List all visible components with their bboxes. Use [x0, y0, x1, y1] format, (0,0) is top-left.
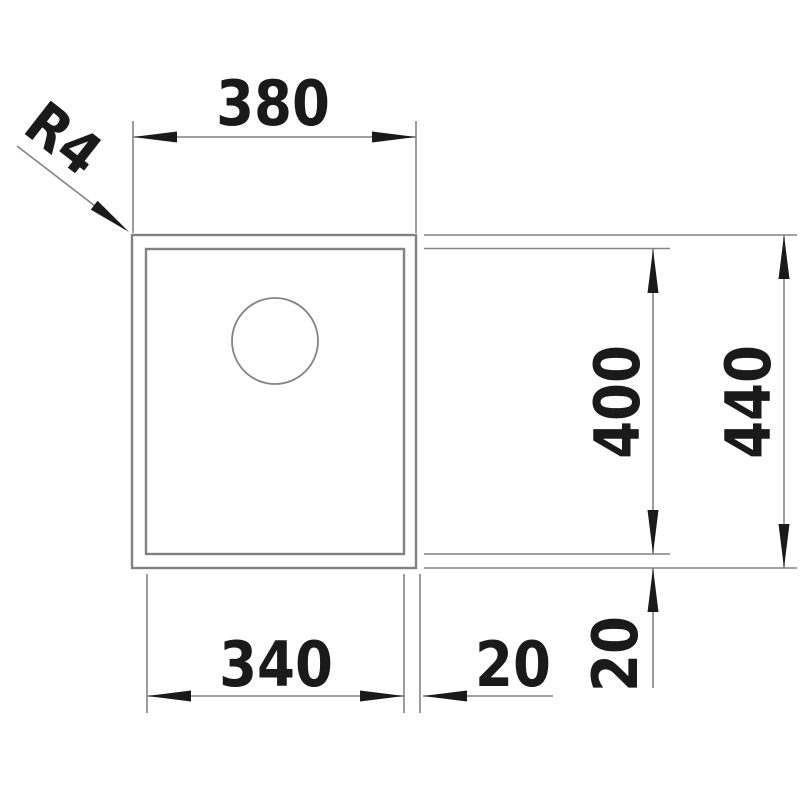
- arrow-right-icon: [372, 132, 416, 143]
- dim-overall-width: 380: [133, 68, 416, 233]
- side-offset-label: 20: [475, 629, 551, 701]
- drain-hole: [232, 298, 318, 384]
- drawing-canvas: 380 R4 400 440 20: [0, 0, 800, 800]
- dim-side-offset: 20: [420, 574, 553, 713]
- overall-depth-label: 440: [713, 345, 785, 459]
- arrow-right-icon: [360, 691, 404, 702]
- arrow-left-icon: [423, 691, 467, 702]
- corner-radius-label: R4: [12, 90, 114, 190]
- dim-bottom-offset: 20: [580, 568, 659, 692]
- sink-bowl-outline: [146, 249, 404, 554]
- bowl-width-label: 340: [219, 629, 333, 701]
- sink-technical-drawing: 380 R4 400 440 20: [0, 0, 800, 800]
- dim-bowl-depth: 400: [582, 249, 659, 554]
- overall-width-label: 380: [216, 68, 330, 140]
- radius-callout: R4: [12, 90, 129, 232]
- dim-overall-depth: 440: [713, 235, 790, 568]
- arrow-down-icon: [779, 524, 790, 568]
- sink-rim-outline: [132, 235, 416, 568]
- arrow-left-icon: [147, 691, 191, 702]
- leader-arrow-icon: [91, 201, 129, 232]
- arrow-down-icon: [648, 510, 659, 554]
- bottom-offset-label: 20: [580, 616, 652, 692]
- arrow-left-icon: [133, 132, 177, 143]
- sink-outline: [132, 235, 416, 568]
- dim-bowl-width: 340: [147, 574, 404, 713]
- arrow-up-icon: [779, 235, 790, 279]
- bowl-depth-label: 400: [582, 345, 654, 459]
- arrow-up-icon: [648, 249, 659, 293]
- arrow-up-icon: [648, 568, 659, 612]
